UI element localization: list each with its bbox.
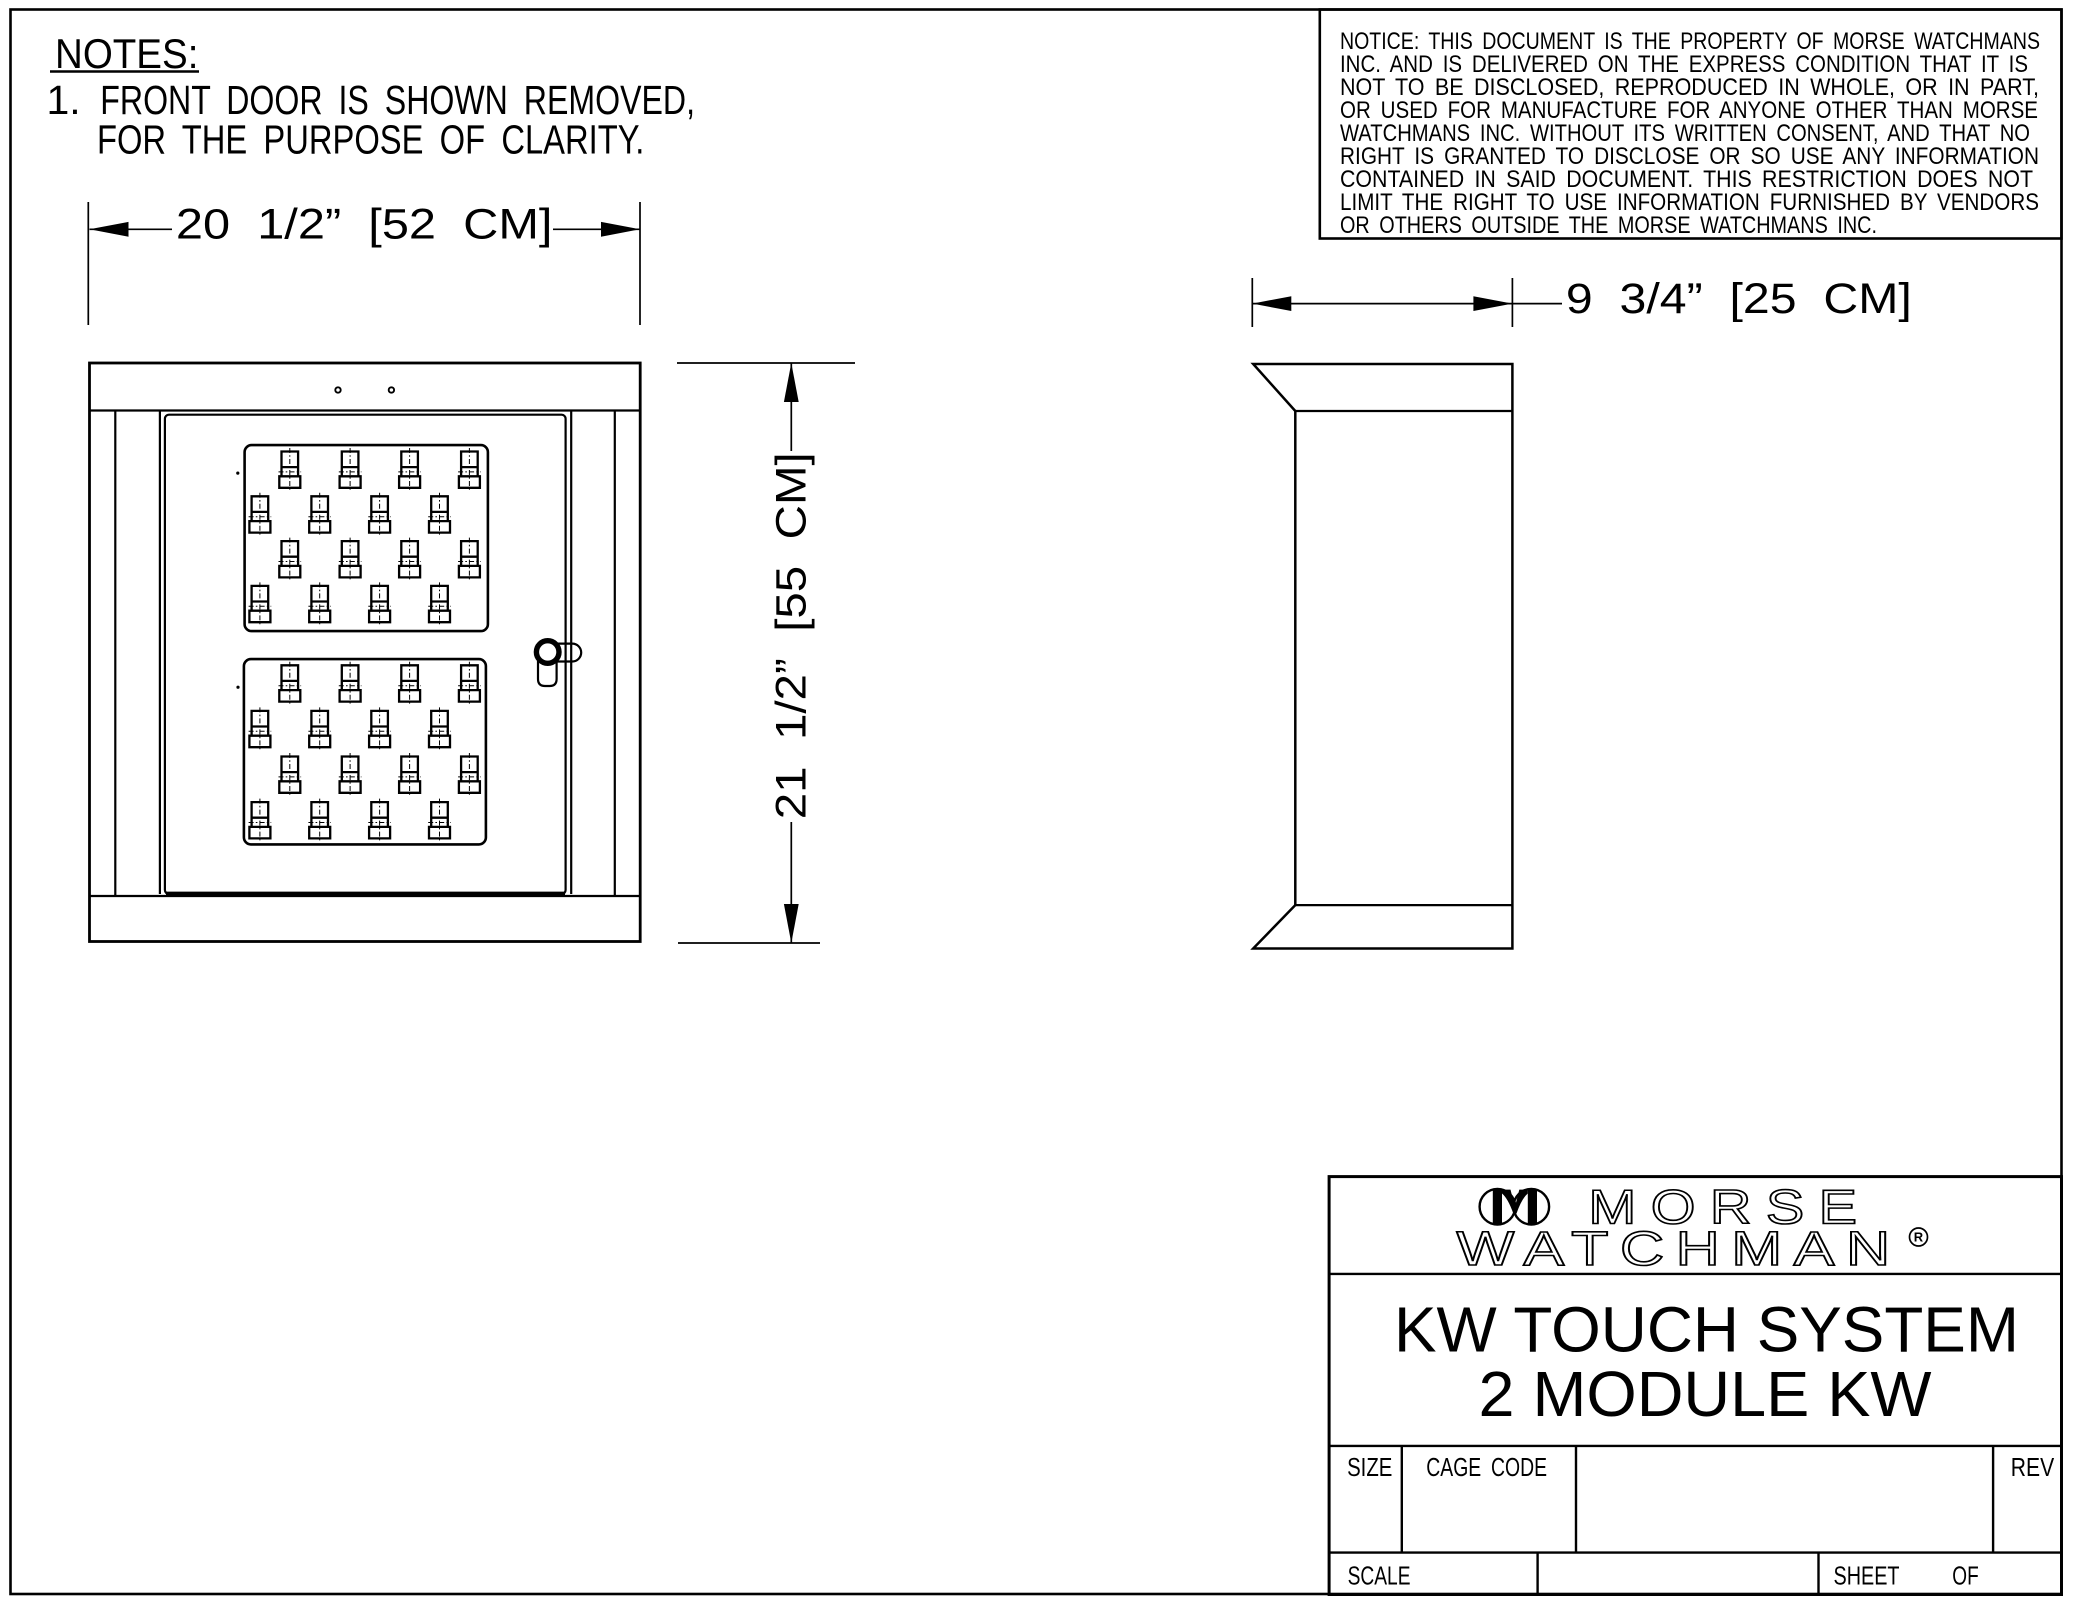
svg-text:WATCHMAN: WATCHMAN xyxy=(1457,1223,1902,1276)
svg-text:2 MODULE KW: 2 MODULE KW xyxy=(1479,1358,1933,1430)
svg-text:OF: OF xyxy=(1952,1560,1978,1590)
svg-text:SHEET: SHEET xyxy=(1834,1560,1900,1590)
svg-text:20 1/2” [52 CM]: 20 1/2” [52 CM] xyxy=(176,201,553,249)
svg-text:R: R xyxy=(1914,1230,1924,1245)
svg-text:KW TOUCH SYSTEM: KW TOUCH SYSTEM xyxy=(1394,1294,2019,1366)
svg-text:21 1/2” [55 CM]: 21 1/2” [55 CM] xyxy=(768,452,816,819)
svg-text:SIZE: SIZE xyxy=(1347,1452,1392,1482)
svg-text:REV: REV xyxy=(2011,1452,2055,1482)
svg-text:SCALE: SCALE xyxy=(1348,1560,1411,1590)
svg-text:CAGE CODE: CAGE CODE xyxy=(1426,1452,1547,1482)
svg-text:1.: 1. xyxy=(47,77,81,123)
svg-text:OR OTHERS OUTSIDE THE MORSE WA: OR OTHERS OUTSIDE THE MORSE WATCHMANS IN… xyxy=(1340,212,1877,239)
svg-text:FOR THE PURPOSE OF CLARITY.: FOR THE PURPOSE OF CLARITY. xyxy=(97,116,644,162)
svg-text:NOTES:: NOTES: xyxy=(55,30,198,77)
svg-text:9 3/4” [25 CM]: 9 3/4” [25 CM] xyxy=(1566,275,1912,323)
